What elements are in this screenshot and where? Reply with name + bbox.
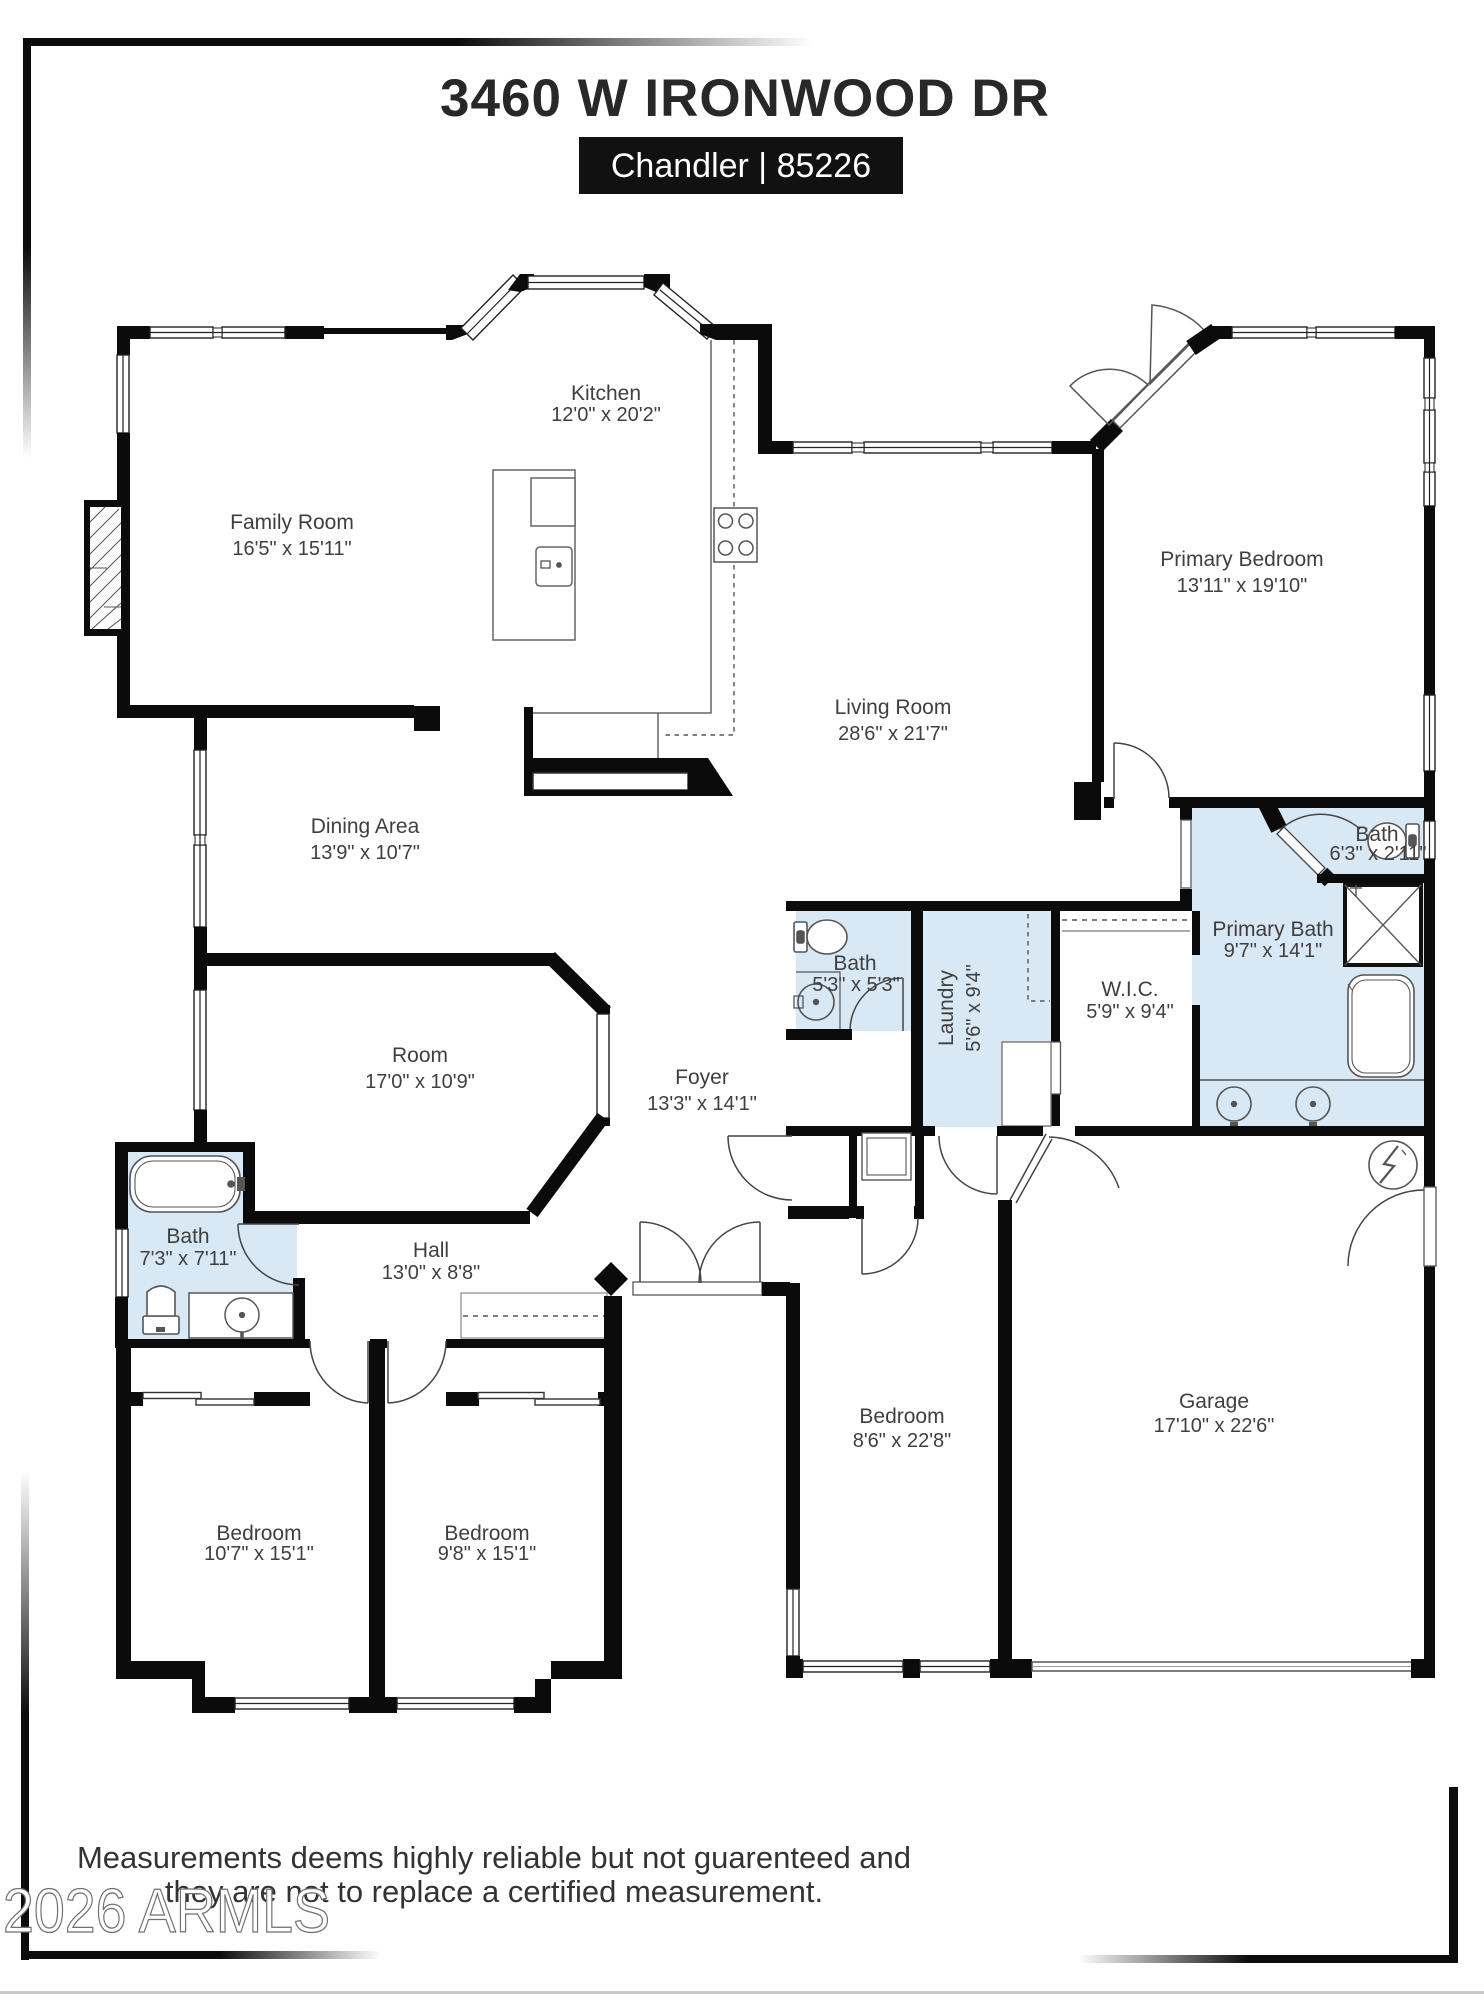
svg-text:13'0" x 8'8": 13'0" x 8'8" xyxy=(382,1262,481,1284)
svg-text:Bath: Bath xyxy=(166,1225,209,1248)
svg-text:17'0" x 10'9": 17'0" x 10'9" xyxy=(365,1071,475,1093)
svg-text:9'8" x 15'1": 9'8" x 15'1" xyxy=(438,1543,537,1565)
svg-text:Dining Area: Dining Area xyxy=(311,815,420,838)
svg-text:13'11" x 19'10": 13'11" x 19'10" xyxy=(1177,575,1307,597)
svg-text:10'7" x 15'1": 10'7" x 15'1" xyxy=(204,1543,314,1565)
svg-text:Bedroom: Bedroom xyxy=(444,1522,529,1545)
svg-text:5'3" x 5'3": 5'3" x 5'3" xyxy=(812,974,899,996)
svg-text:Measurements deems highly reli: Measurements deems highly reliable but n… xyxy=(77,1840,911,1875)
svg-text:6'3" x 2'11": 6'3" x 2'11" xyxy=(1329,843,1426,865)
svg-text:28'6" x 21'7": 28'6" x 21'7" xyxy=(838,723,948,745)
svg-text:7'3" x 7'11": 7'3" x 7'11" xyxy=(139,1248,236,1270)
svg-text:Bedroom: Bedroom xyxy=(216,1522,301,1545)
svg-text:9'7" x 14'1": 9'7" x 14'1" xyxy=(1224,940,1323,962)
svg-text:Laundry: Laundry xyxy=(935,970,958,1046)
svg-text:13'3" x 14'1": 13'3" x 14'1" xyxy=(647,1093,757,1115)
svg-text:Kitchen: Kitchen xyxy=(571,382,641,405)
svg-text:Garage: Garage xyxy=(1179,1390,1249,1413)
svg-text:13'9" x 10'7": 13'9" x 10'7" xyxy=(310,842,420,864)
svg-text:12'0" x 20'2": 12'0" x 20'2" xyxy=(551,404,661,426)
svg-text:8'6" x 22'8": 8'6" x 22'8" xyxy=(853,1430,952,1452)
svg-text:Foyer: Foyer xyxy=(675,1066,729,1089)
svg-text:Hall: Hall xyxy=(413,1239,449,1262)
svg-text:Room: Room xyxy=(392,1044,448,1067)
svg-text:5'6" x 9'4": 5'6" x 9'4" xyxy=(963,964,985,1051)
svg-text:Primary Bath: Primary Bath xyxy=(1212,918,1333,941)
svg-text:Bath: Bath xyxy=(833,952,876,975)
svg-text:Family Room: Family Room xyxy=(230,511,354,534)
svg-text:Chandler | 85226: Chandler | 85226 xyxy=(611,147,871,185)
svg-text:Primary Bedroom: Primary Bedroom xyxy=(1160,548,1323,571)
svg-text:3460 W IRONWOOD DR: 3460 W IRONWOOD DR xyxy=(440,69,1050,128)
svg-text:2026 ARMLS: 2026 ARMLS xyxy=(3,1877,330,1946)
svg-text:Living Room: Living Room xyxy=(835,696,952,719)
svg-text:5'9" x 9'4": 5'9" x 9'4" xyxy=(1086,1001,1173,1023)
svg-text:W.I.C.: W.I.C. xyxy=(1101,978,1158,1001)
svg-text:16'5" x 15'11": 16'5" x 15'11" xyxy=(232,538,351,560)
svg-text:Bedroom: Bedroom xyxy=(859,1405,944,1428)
svg-text:17'10" x 22'6": 17'10" x 22'6" xyxy=(1154,1415,1275,1437)
